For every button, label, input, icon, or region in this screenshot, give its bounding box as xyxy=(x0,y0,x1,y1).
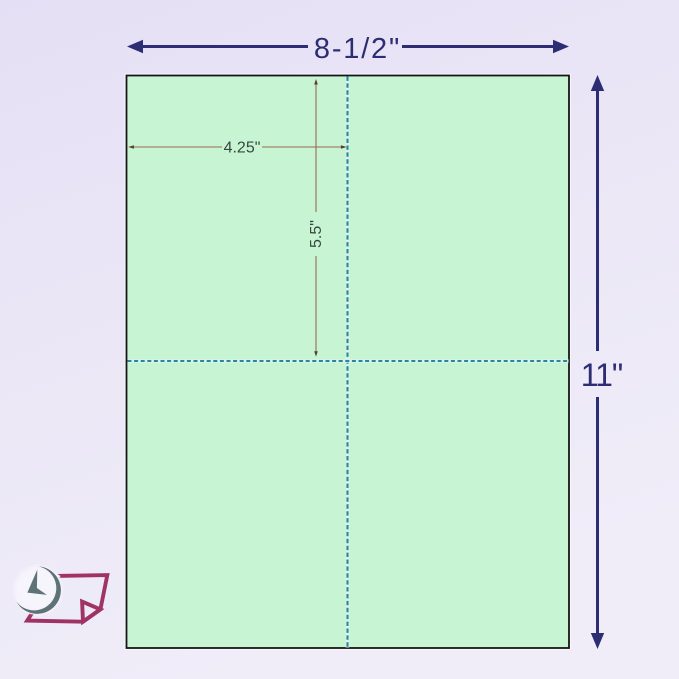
svg-text:8-1/2": 8-1/2" xyxy=(314,33,401,65)
svg-text:5.5": 5.5" xyxy=(308,220,325,248)
svg-text:4.25": 4.25" xyxy=(224,140,261,157)
svg-text:11": 11" xyxy=(581,357,623,393)
